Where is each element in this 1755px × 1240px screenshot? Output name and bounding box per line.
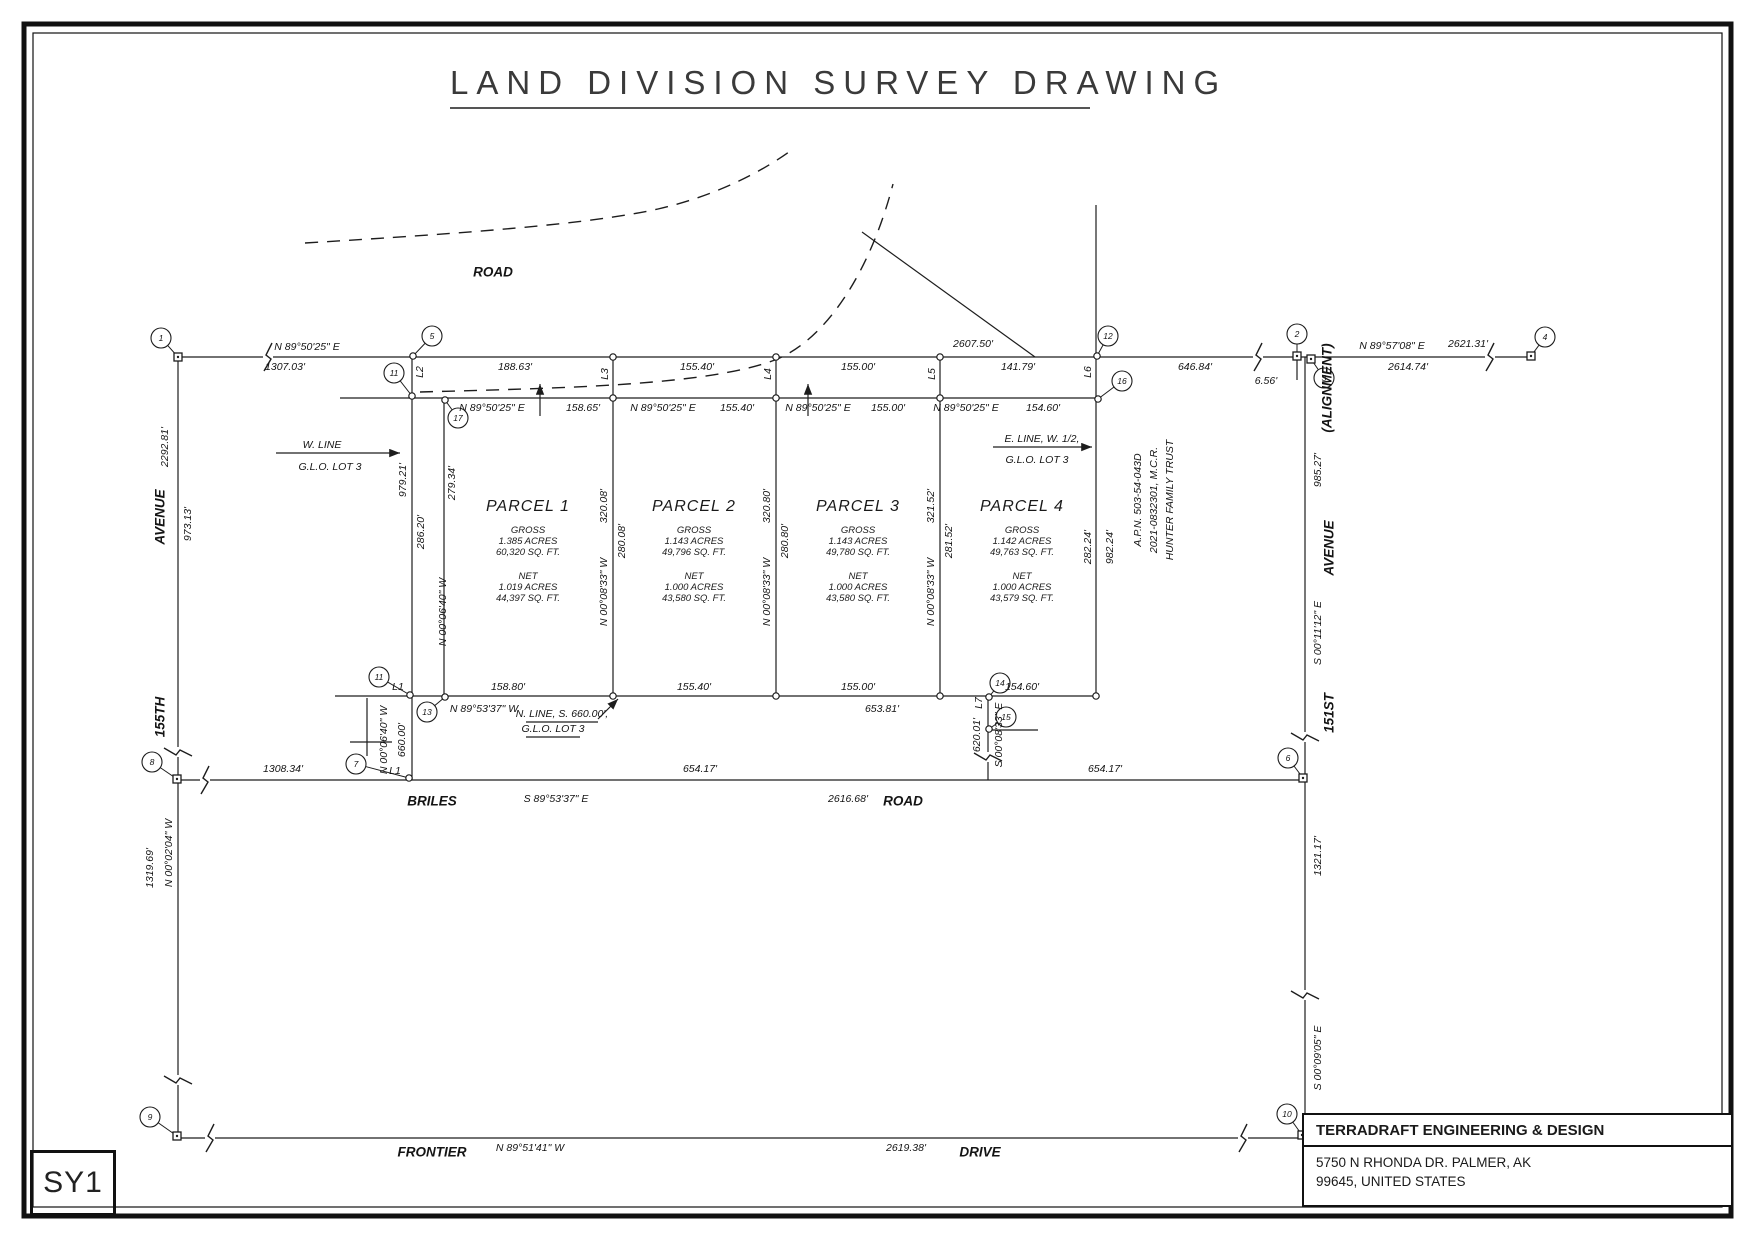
page-border-inner xyxy=(33,33,1722,1207)
parcel-net-line: NET xyxy=(609,571,779,582)
dim-label: N 89°53'37" W xyxy=(450,703,518,715)
svg-text:1: 1 xyxy=(159,333,164,343)
parcel-block: PARCEL 2GROSS1.143 ACRES49,796 SQ. FT.NE… xyxy=(609,498,779,604)
parcel-net-line: 43,580 SQ. FT. xyxy=(609,593,779,604)
sheet-id: SY1 xyxy=(43,1166,103,1200)
dim-label: 654.17' xyxy=(1088,763,1122,775)
dim-label: L1 xyxy=(389,765,401,777)
road-label-avenue-left: AVENUE xyxy=(153,489,168,544)
dim-label: L3 xyxy=(599,368,611,380)
point-marker-2: 2 xyxy=(1287,324,1307,360)
dim-label: N 89°51'41" W xyxy=(496,1142,564,1154)
point-marker-11: 11 xyxy=(384,363,415,399)
dim-label: N 89°50'25" E xyxy=(933,402,998,414)
svg-text:17: 17 xyxy=(453,413,463,423)
svg-text:11: 11 xyxy=(390,368,399,378)
address-line-2: 99645, UNITED STATES xyxy=(1316,1172,1731,1191)
svg-text:6: 6 xyxy=(1286,753,1291,763)
dim-label: 154.60' xyxy=(1005,681,1039,693)
dim-label: 286.20' xyxy=(415,515,427,549)
line-break-symbols xyxy=(164,343,1495,1152)
dim-label: 1319.69' xyxy=(144,848,156,888)
parcel-gross-line: GROSS xyxy=(773,525,943,536)
point-marker-1: 1 xyxy=(151,328,182,361)
road-label-briles-road: ROAD xyxy=(883,794,923,809)
dim-label: N 89°50'25" E xyxy=(630,402,695,414)
parcel-gross-line: GROSS xyxy=(443,525,613,536)
dim-label: HUNTER FAMILY TRUST xyxy=(1164,440,1176,561)
dim-label: 279.34' xyxy=(446,466,458,500)
dim-label: 2614.74' xyxy=(1388,361,1428,373)
parcel-net-line: NET xyxy=(443,571,613,582)
parcel-name: PARCEL 3 xyxy=(773,498,943,516)
dim-label: L6 xyxy=(1082,366,1094,378)
dim-label: 154.60' xyxy=(1026,402,1060,414)
survey-linework: 151117121623411131415786910 xyxy=(0,0,1755,1240)
company-name: TERRADRAFT ENGINEERING & DESIGN xyxy=(1304,1115,1731,1147)
svg-text:16: 16 xyxy=(1117,376,1127,386)
dim-label: 2607.50' xyxy=(953,338,993,350)
dim-label: 1307.03' xyxy=(265,361,305,373)
parcel-net-line: 1.019 ACRES xyxy=(443,582,613,593)
dim-label: 158.80' xyxy=(491,681,525,693)
dim-label: 2621.31' xyxy=(1448,338,1488,350)
svg-text:11: 11 xyxy=(375,672,384,682)
dim-label: 1308.34' xyxy=(263,763,303,775)
dim-label: 979.21' xyxy=(397,463,409,497)
dim-label: 973.13' xyxy=(182,507,194,541)
parcel-block: PARCEL 3GROSS1.143 ACRES49,780 SQ. FT.NE… xyxy=(773,498,943,604)
parcel-net-line: 1.000 ACRES xyxy=(773,582,943,593)
parcel-net-line: 43,579 SQ. FT. xyxy=(937,593,1107,604)
page-border-outer xyxy=(24,24,1731,1216)
point-marker-5: 5 xyxy=(410,326,442,359)
dim-label: 660.00' xyxy=(396,723,408,757)
svg-text:7: 7 xyxy=(354,759,359,769)
dim-label: 2619.38' xyxy=(886,1142,926,1154)
dim-label: 158.65' xyxy=(566,402,600,414)
parcel-gross-line: 1.385 ACRES xyxy=(443,536,613,547)
dim-label: N. LINE, S. 660.00', xyxy=(516,708,608,720)
dim-label: 141.79' xyxy=(1001,361,1035,373)
road-label-151st: 151ST xyxy=(1322,693,1337,733)
dim-label: 620.01' xyxy=(971,718,983,752)
dim-label: L7 xyxy=(973,697,985,709)
svg-text:10: 10 xyxy=(1282,1109,1292,1119)
title-block: TERRADRAFT ENGINEERING & DESIGN 5750 N R… xyxy=(1302,1113,1733,1207)
parcel-net-line: 43,580 SQ. FT. xyxy=(773,593,943,604)
dim-label: 155.40' xyxy=(680,361,714,373)
road-label-avenue-right: AVENUE xyxy=(1322,520,1337,575)
dim-label: S 89°53'37" E xyxy=(524,793,589,805)
parcel-gross-line: GROSS xyxy=(609,525,779,536)
dim-label: 654.17' xyxy=(683,763,717,775)
dim-label: W. LINE xyxy=(303,439,342,451)
survey-sheet: 151117121623411131415786910 LAND DIVISIO… xyxy=(0,0,1755,1240)
dim-label: S 00°11'12" E xyxy=(1312,601,1324,665)
dim-label: 646.84' xyxy=(1178,361,1212,373)
point-marker-9: 9 xyxy=(140,1107,181,1140)
dim-label: 1321.17' xyxy=(1312,836,1324,876)
dim-label: S 00°08'33" E xyxy=(993,703,1005,768)
dim-label: 155.00' xyxy=(871,402,905,414)
dim-label: N 89°50'25" E xyxy=(459,402,524,414)
parcel-net-line: 1.000 ACRES xyxy=(609,582,779,593)
parcel-gross-line: 1.143 ACRES xyxy=(773,536,943,547)
dim-label: 155.00' xyxy=(841,361,875,373)
dim-label: L5 xyxy=(926,368,938,380)
drawing-title: LAND DIVISION SURVEY DRAWING xyxy=(450,64,1090,109)
dim-label: 155.40' xyxy=(720,402,754,414)
dim-label: N 00°02'04" W xyxy=(163,819,175,887)
parcel-net-line: 1.000 ACRES xyxy=(937,582,1107,593)
dim-label: 155.40' xyxy=(677,681,711,693)
dim-label: G.L.O. LOT 3 xyxy=(1005,454,1068,466)
svg-text:8: 8 xyxy=(150,757,155,767)
dim-label: S 00°09'05" E xyxy=(1312,1026,1324,1091)
road-label-top: ROAD xyxy=(473,265,513,280)
point-marker-11: 11 xyxy=(369,667,413,698)
svg-text:4: 4 xyxy=(1543,332,1548,342)
svg-text:13: 13 xyxy=(422,707,432,717)
parcel-gross-line: 60,320 SQ. FT. xyxy=(443,547,613,558)
sheet-id-box: SY1 xyxy=(30,1150,116,1216)
parcel-gross-line: 1.143 ACRES xyxy=(609,536,779,547)
svg-text:12: 12 xyxy=(1103,331,1113,341)
point-marker-16: 16 xyxy=(1095,371,1132,402)
dim-label: N 89°50'25" E xyxy=(274,341,339,353)
dim-label: A.P.N. 503-54-043D xyxy=(1132,453,1144,546)
dim-label: 2292.81' xyxy=(159,427,171,467)
dim-label: N 89°57'08" E xyxy=(1359,340,1424,352)
address-line-1: 5750 N RHONDA DR. PALMER, AK xyxy=(1316,1153,1731,1172)
dim-label: G.L.O. LOT 3 xyxy=(521,723,584,735)
dim-label: N 89°50'25" E xyxy=(785,402,850,414)
point-marker-13: 13 xyxy=(417,694,448,722)
dim-label: 188.63' xyxy=(498,361,532,373)
point-markers: 151117121623411131415786910 xyxy=(140,324,1555,1140)
dim-label: N 00°06'40" W xyxy=(378,706,390,774)
parcel-name: PARCEL 4 xyxy=(937,498,1107,516)
svg-text:2: 2 xyxy=(1294,329,1300,339)
parcel-gross-line: 49,763 SQ. FT. xyxy=(937,547,1107,558)
dim-label: L4 xyxy=(762,368,774,380)
point-marker-4: 4 xyxy=(1527,327,1555,360)
parcel-net-line: 44,397 SQ. FT. xyxy=(443,593,613,604)
parcel-gross-line: GROSS xyxy=(937,525,1107,536)
point-marker-12: 12 xyxy=(1094,326,1118,359)
road-label-frontier: FRONTIER xyxy=(398,1145,467,1160)
parcel-gross-line: 49,796 SQ. FT. xyxy=(609,547,779,558)
dim-label: L2 xyxy=(414,366,426,378)
svg-text:9: 9 xyxy=(148,1112,153,1122)
point-marker-6: 6 xyxy=(1278,748,1307,782)
parcel-name: PARCEL 2 xyxy=(609,498,779,516)
road-centerlines xyxy=(305,149,893,392)
dim-label: G.L.O. LOT 3 xyxy=(298,461,361,473)
dim-label: 2021-0832301, M.C.R. xyxy=(1148,447,1160,553)
road-label-drive: DRIVE xyxy=(959,1145,1000,1160)
parcel-gross-line: 1.142 ACRES xyxy=(937,536,1107,547)
parcel-block: PARCEL 4GROSS1.142 ACRES49,763 SQ. FT.NE… xyxy=(937,498,1107,604)
parcel-net-line: NET xyxy=(773,571,943,582)
dim-label: L1 xyxy=(392,681,404,693)
road-label-155th: 155TH xyxy=(153,697,168,738)
dim-label: 653.81' xyxy=(865,703,899,715)
dim-label: 155.00' xyxy=(841,681,875,693)
road-label-briles: BRILES xyxy=(407,794,457,809)
parcel-block: PARCEL 1GROSS1.385 ACRES60,320 SQ. FT.NE… xyxy=(443,498,613,604)
svg-text:5: 5 xyxy=(430,331,435,341)
dim-label: 985.27' xyxy=(1312,453,1324,487)
dim-label: E. LINE, W. 1/2, xyxy=(1005,433,1080,445)
dim-label: 2616.68' xyxy=(828,793,868,805)
svg-text:14: 14 xyxy=(995,678,1005,688)
parcel-net-line: NET xyxy=(937,571,1107,582)
alignment-label: (ALIGNMENT) xyxy=(1320,343,1335,432)
dim-label: 6.56' xyxy=(1255,375,1277,387)
parcel-name: PARCEL 1 xyxy=(443,498,613,516)
parcel-gross-line: 49,780 SQ. FT. xyxy=(773,547,943,558)
